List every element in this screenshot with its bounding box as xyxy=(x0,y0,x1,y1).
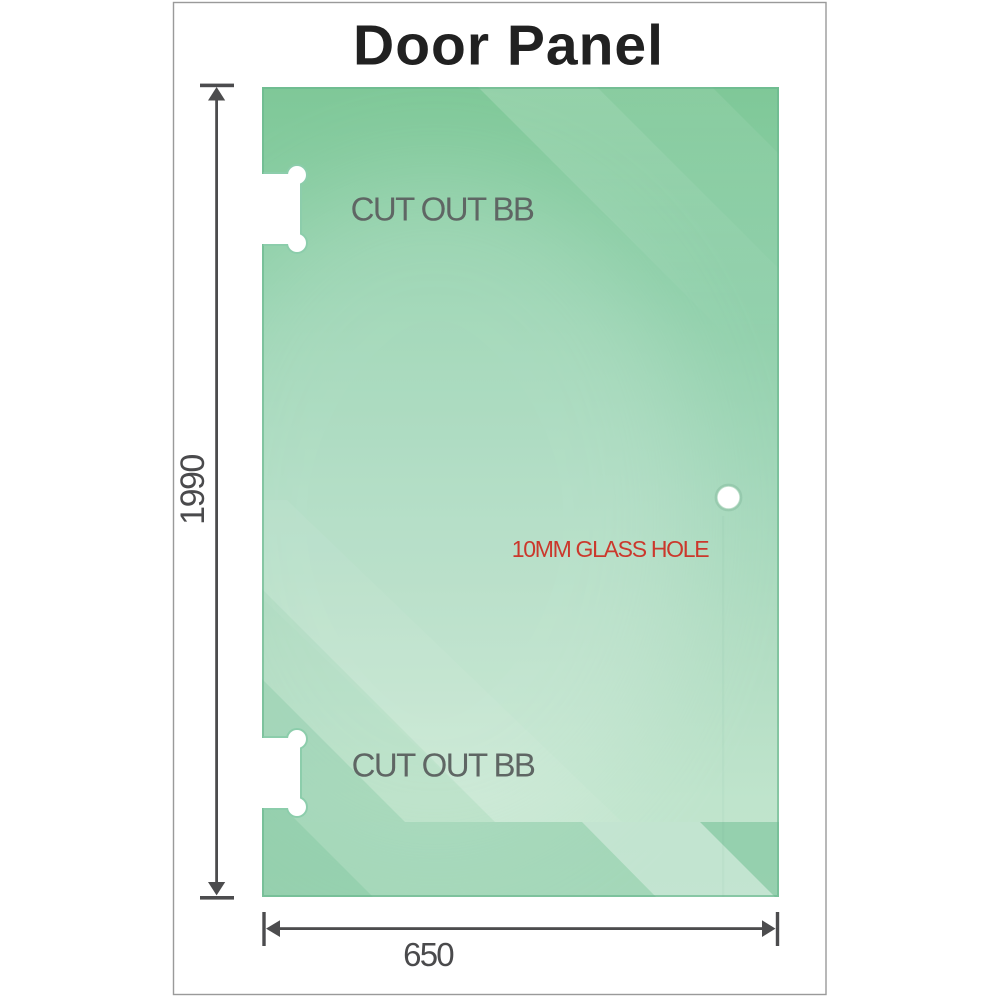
svg-text:CUT OUT BB: CUT OUT BB xyxy=(352,747,535,784)
svg-text:10MM GLASS HOLE: 10MM GLASS HOLE xyxy=(512,536,709,562)
svg-text:650: 650 xyxy=(403,936,454,973)
svg-text:1990: 1990 xyxy=(174,455,212,525)
svg-text:Door Panel: Door Panel xyxy=(353,14,664,78)
svg-text:CUT OUT BB: CUT OUT BB xyxy=(351,191,534,228)
